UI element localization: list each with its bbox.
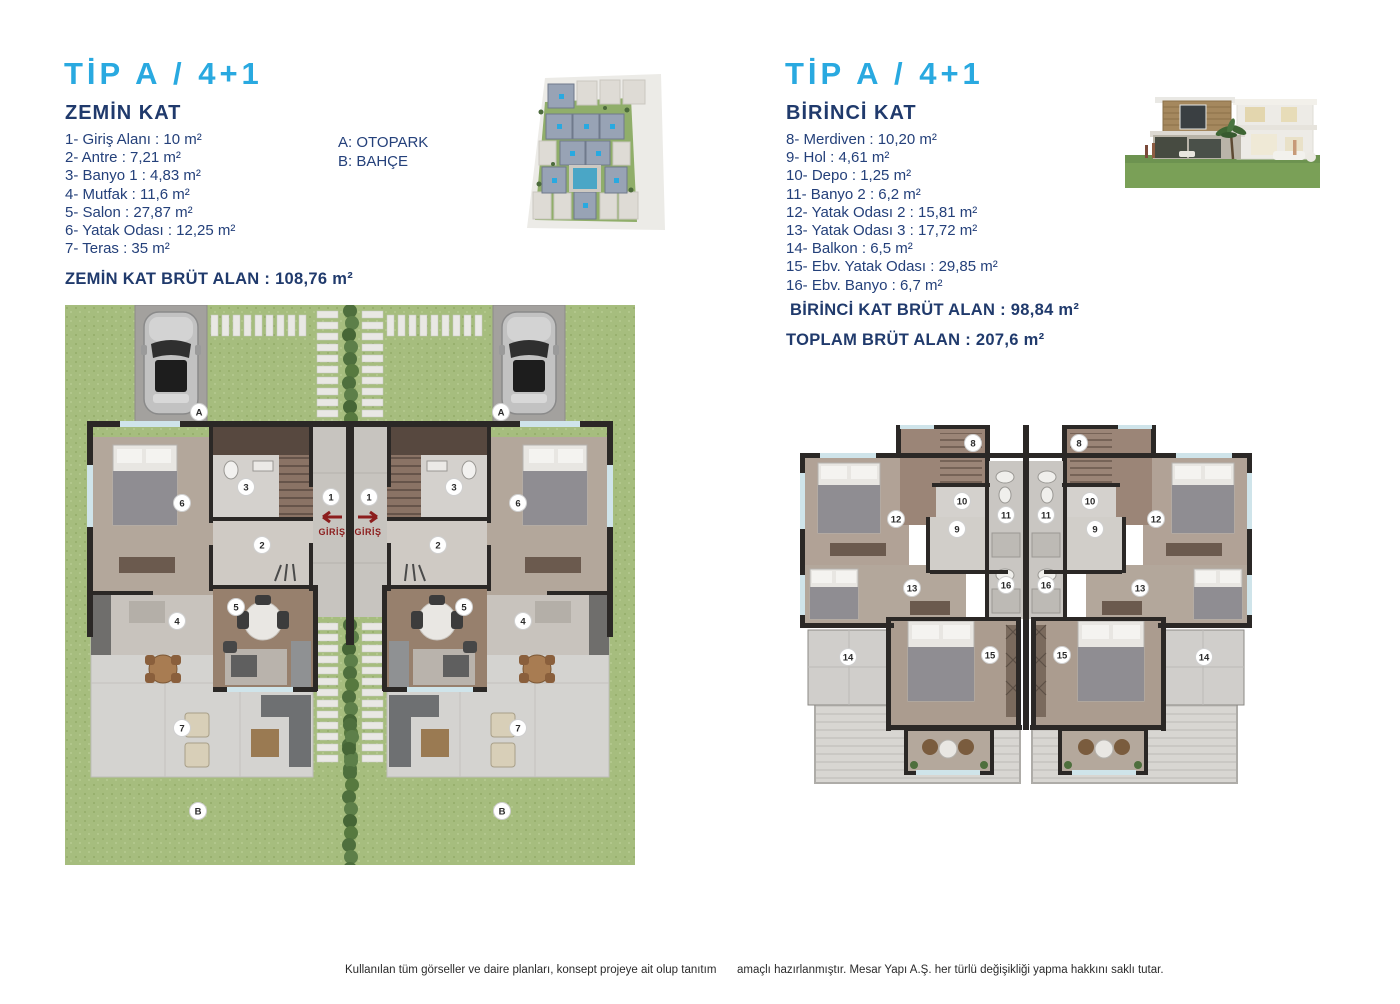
birinci-room-item: 9- Hol : 4,61 m² xyxy=(786,149,998,167)
birinci-room-item: 8- Merdiven : 10,20 m² xyxy=(786,131,998,149)
zemin-kat-floor-plan: GİRİŞ GİRİŞ A A 1 1 2 2 3 3 4 4 5 5 6 6 … xyxy=(65,305,635,865)
svg-text:15: 15 xyxy=(1057,651,1068,662)
svg-text:9: 9 xyxy=(954,525,959,536)
zemin-room-item: 1- Giriş Alanı : 10 m² xyxy=(65,131,235,149)
legend-bahce: B: BAHÇE xyxy=(338,152,428,171)
svg-text:6: 6 xyxy=(179,499,184,510)
zemin-room-item: 6- Yatak Odası : 12,25 m² xyxy=(65,222,235,240)
birinci-title: TİP A / 4+1 xyxy=(785,56,984,92)
svg-text:3: 3 xyxy=(243,483,248,494)
birinci-room-item: 10- Depo : 1,25 m² xyxy=(786,167,998,185)
upper-unit-left xyxy=(800,425,1026,783)
zemin-room-item: 5- Salon : 27,87 m² xyxy=(65,204,235,222)
site-pool xyxy=(569,165,601,192)
birinci-room-list: 8- Merdiven : 10,20 m² 9- Hol : 4,61 m² … xyxy=(786,131,998,295)
birinci-room-item: 14- Balkon : 6,5 m² xyxy=(786,240,998,258)
villa-faded-half xyxy=(1233,99,1317,162)
zemin-title: TİP A / 4+1 xyxy=(64,56,263,92)
svg-text:5: 5 xyxy=(461,603,467,614)
svg-text:8: 8 xyxy=(970,439,975,450)
car-top-view xyxy=(141,312,201,414)
svg-text:9: 9 xyxy=(1092,525,1097,536)
disclaimer-right: amaçlı hazırlanmıştır. Mesar Yapı A.Ş. h… xyxy=(737,964,1164,976)
legend-otopark: A: OTOPARK xyxy=(338,133,428,152)
birinci-kat-floor-plan: 8 8 9 9 10 10 11 11 12 12 13 13 14 14 15… xyxy=(790,425,1262,790)
svg-text:16: 16 xyxy=(1041,581,1052,592)
svg-text:13: 13 xyxy=(1135,584,1146,595)
svg-text:B: B xyxy=(195,807,202,818)
brochure-page: TİP A / 4+1 ZEMİN KAT 1- Giriş Alanı : 1… xyxy=(0,0,1400,1004)
svg-text:2: 2 xyxy=(259,541,264,552)
svg-text:7: 7 xyxy=(515,724,520,735)
upper-unit-right xyxy=(1026,425,1252,783)
svg-text:5: 5 xyxy=(233,603,239,614)
zemin-brut-alan: ZEMİN KAT BRÜT ALAN : 108,76 m² xyxy=(65,270,353,289)
zemin-subtitle: ZEMİN KAT xyxy=(65,102,181,125)
zemin-room-item: 3- Banyo 1 : 4,83 m² xyxy=(65,167,235,185)
svg-text:4: 4 xyxy=(174,617,180,628)
svg-text:7: 7 xyxy=(179,724,184,735)
svg-text:11: 11 xyxy=(1041,511,1052,522)
svg-text:11: 11 xyxy=(1001,511,1012,522)
svg-text:1: 1 xyxy=(366,493,372,504)
svg-text:A: A xyxy=(196,408,203,419)
svg-text:6: 6 xyxy=(515,499,520,510)
party-wall xyxy=(1023,425,1029,730)
site-plan-thumbnail xyxy=(515,72,665,234)
svg-text:2: 2 xyxy=(435,541,440,552)
party-wall xyxy=(346,421,354,645)
svg-text:8: 8 xyxy=(1076,439,1081,450)
svg-text:4: 4 xyxy=(520,617,526,628)
birinci-room-item: 13- Yatak Odası 3 : 17,72 m² xyxy=(786,222,998,240)
svg-text:10: 10 xyxy=(957,497,968,508)
villa-render-thumbnail xyxy=(1125,93,1320,188)
svg-text:14: 14 xyxy=(843,653,854,664)
svg-text:GİRİŞ: GİRİŞ xyxy=(354,527,381,537)
birinci-room-item: 12- Yatak Odası 2 : 15,81 m² xyxy=(786,204,998,222)
svg-text:A: A xyxy=(498,408,505,419)
svg-text:15: 15 xyxy=(985,651,996,662)
disclaimer-left: Kullanılan tüm görseller ve daire planla… xyxy=(345,964,716,976)
svg-text:10: 10 xyxy=(1085,497,1096,508)
house-unit-right xyxy=(351,421,613,777)
birinci-brut-alan: BİRİNCİ KAT BRÜT ALAN : 98,84 m² xyxy=(790,301,1079,320)
car-top-view xyxy=(499,312,559,414)
birinci-room-item: 11- Banyo 2 : 6,2 m² xyxy=(786,186,998,204)
svg-text:GİRİŞ: GİRİŞ xyxy=(318,527,345,537)
svg-text:14: 14 xyxy=(1199,653,1210,664)
birinci-room-item: 15- Ebv. Yatak Odası : 29,85 m² xyxy=(786,258,998,276)
plan-legend: A: OTOPARK B: BAHÇE xyxy=(338,133,428,171)
zemin-room-list: 1- Giriş Alanı : 10 m² 2- Antre : 7,21 m… xyxy=(65,131,235,258)
house-unit-left xyxy=(87,421,349,777)
toplam-brut-alan: TOPLAM BRÜT ALAN : 207,6 m² xyxy=(786,331,1044,350)
svg-text:12: 12 xyxy=(891,515,902,526)
birinci-room-item: 16- Ebv. Banyo : 6,7 m² xyxy=(786,277,998,295)
svg-text:3: 3 xyxy=(451,483,456,494)
svg-text:12: 12 xyxy=(1151,515,1162,526)
svg-text:B: B xyxy=(499,807,506,818)
svg-text:1: 1 xyxy=(328,493,334,504)
svg-text:16: 16 xyxy=(1001,581,1012,592)
birinci-subtitle: BİRİNCİ KAT xyxy=(786,102,917,125)
zemin-room-item: 7- Teras : 35 m² xyxy=(65,240,235,258)
zemin-room-item: 4- Mutfak : 11,6 m² xyxy=(65,186,235,204)
svg-text:13: 13 xyxy=(907,584,918,595)
zemin-room-item: 2- Antre : 7,21 m² xyxy=(65,149,235,167)
